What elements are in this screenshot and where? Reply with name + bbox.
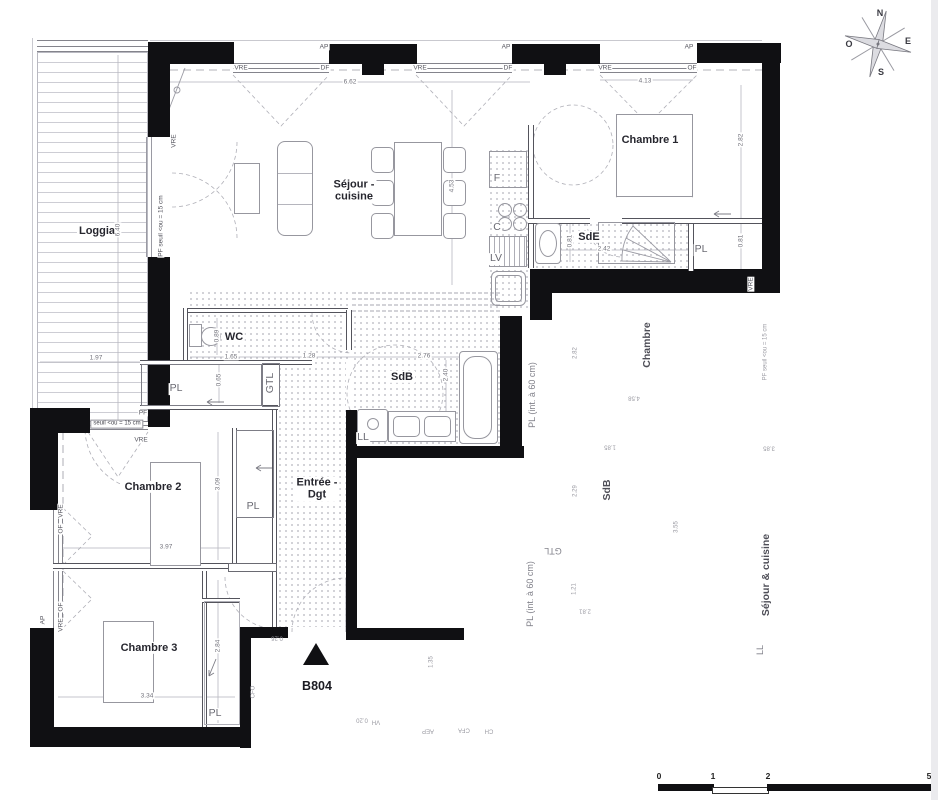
- dimension-label: 3.34: [140, 692, 155, 699]
- partition-wall: [528, 125, 534, 268]
- wall-segment: [530, 290, 552, 320]
- neighbor-label: LL: [755, 645, 765, 655]
- dimension-label: 0.81: [737, 234, 744, 249]
- threshold-tag: PF seuil <ou = 15 cm: [157, 194, 164, 257]
- dimension-label: 2.84: [214, 639, 221, 654]
- compass-letter-o: O: [845, 39, 852, 49]
- scale-bar-segment: [767, 784, 932, 791]
- kitchen-sink: [491, 271, 526, 306]
- utility-tag: CFO: [251, 686, 258, 699]
- wall-segment: [329, 44, 417, 64]
- vanity-double-basin: [388, 411, 456, 442]
- dimension-label: 1.97: [89, 354, 104, 361]
- neighbor-dimension: 0.20: [356, 716, 368, 723]
- opening-tag: VRE: [57, 503, 64, 518]
- sde-washbasin: [535, 223, 561, 264]
- unit-number: B804: [302, 679, 332, 693]
- shower-tray: [598, 222, 675, 264]
- wall-segment: [362, 64, 384, 75]
- dimension-label: 2.42: [597, 245, 612, 252]
- washer-label: LL: [356, 432, 370, 444]
- neighbor-label: GTL: [544, 546, 562, 556]
- room-label-sdb: SdB: [389, 371, 415, 383]
- closet-label: PL: [208, 708, 223, 720]
- scale-tick-label: 2: [766, 772, 771, 782]
- neighbor-dimension: 1.35: [429, 656, 436, 668]
- opening-tag: OF: [57, 523, 64, 534]
- dishwasher-label: LV: [489, 253, 503, 265]
- hob-burner: [513, 203, 527, 217]
- dining-chair: [371, 147, 394, 173]
- fridge-label: F: [493, 173, 501, 185]
- partition-wall: [346, 310, 352, 350]
- bed-chambre-2: [150, 462, 201, 566]
- scale-bar-segment: [712, 787, 769, 794]
- utility-tag: CFA: [458, 726, 470, 733]
- utility-tag: CH: [485, 727, 494, 734]
- partition-wall: [183, 308, 188, 365]
- neighbor-label: PL (int. à 60 cm): [525, 561, 535, 627]
- opening-tag: VRE: [233, 64, 248, 71]
- wall-segment: [544, 64, 566, 75]
- room-label-chambre-2: Chambre 2: [123, 481, 184, 493]
- neighbor-dimension: 1.85: [604, 443, 616, 450]
- neighbor-dimension: 3.85: [763, 444, 775, 451]
- utility-tag: VH: [372, 718, 380, 725]
- compass-letter-e: E: [905, 36, 911, 46]
- room-label-sde: SdE: [576, 231, 601, 243]
- neighbor-dimension: 3.55: [674, 521, 681, 533]
- neighbor-room-label: SdB: [602, 480, 614, 501]
- room-label-entree-dgt: Entrée - Dgt: [295, 477, 340, 502]
- sliding-door-leaf: [228, 563, 277, 572]
- compass-letter-s: S: [878, 67, 884, 77]
- cooktop-label: C: [492, 222, 502, 234]
- dining-chair: [443, 213, 466, 239]
- neighbor-dimension: 2.81: [579, 607, 591, 614]
- neighbor-dimension: 1.21: [572, 583, 579, 595]
- partition-wall: [53, 563, 231, 569]
- dimension-label: 1.65: [224, 353, 239, 360]
- room-label-wc: WC: [223, 331, 245, 343]
- opening-tag: AP: [501, 43, 512, 50]
- dimension-label: 0.89: [213, 329, 220, 344]
- opening-tag: VRE: [170, 133, 177, 148]
- bed-chambre-3: [103, 621, 154, 703]
- french-door-frame: [146, 137, 152, 257]
- threshold-tag: seuil <ou = 15 cm: [90, 420, 143, 429]
- entrance-triangle: [303, 643, 329, 665]
- dimension-label: 4.13: [638, 77, 653, 84]
- opening-tag: PF: [138, 409, 148, 416]
- wall-segment: [148, 42, 170, 137]
- dimension-label: 3.97: [159, 543, 174, 550]
- dimension-label: 3.09: [214, 477, 221, 492]
- wall-segment: [762, 43, 780, 293]
- room-label-sejour-cuisine: Séjour - cuisine: [332, 179, 377, 204]
- wall-segment: [512, 44, 600, 64]
- neighbor-dimension: 4.58: [628, 394, 640, 401]
- wall-segment: [30, 628, 54, 747]
- utility-tag: AEP: [422, 727, 434, 734]
- room-label-loggia: Loggia: [77, 225, 117, 237]
- neighbor-label: PF seuil <ou = 15 cm: [763, 324, 770, 381]
- room-label-chambre-1: Chambre 1: [620, 134, 681, 146]
- opening-tag: AP: [684, 43, 695, 50]
- opening-tag: VRE: [57, 617, 64, 632]
- opening-tag: VRE: [747, 276, 754, 291]
- sofa: [277, 141, 313, 236]
- hob-burner: [513, 217, 527, 231]
- dimension-label: 6.62: [343, 78, 358, 85]
- wall-segment: [500, 316, 522, 458]
- closet-label: PL: [694, 244, 709, 256]
- wall-segment: [346, 628, 464, 640]
- opening-tag: OF: [57, 601, 64, 612]
- dimension-label: 2.40: [442, 368, 449, 383]
- opening-tag: DF: [320, 64, 331, 71]
- gtl-label: GTL: [265, 372, 277, 394]
- dimension-label: 2.82: [737, 133, 744, 148]
- floor-plan-canvas: LoggiaSéjour - cuisineChambre 1SdEWCSdBE…: [0, 0, 938, 800]
- side-table: [234, 163, 260, 214]
- closet-label: PL: [246, 501, 261, 513]
- dimension-label: 2.76: [417, 352, 432, 359]
- bathtub: [459, 351, 498, 444]
- closet-box-wc: [141, 364, 262, 406]
- dimension-label: 6.40: [114, 223, 121, 238]
- dimension-label: 0.81: [566, 234, 573, 249]
- partition-wall: [188, 308, 348, 313]
- neighbor-dimension: 2.29: [573, 485, 580, 497]
- opening-tag: DF: [503, 64, 514, 71]
- wall-segment: [30, 408, 90, 433]
- scale-bar-segment: [658, 784, 714, 791]
- scale-tick-label: 1: [711, 772, 716, 782]
- opening-tag: VRE: [597, 64, 612, 71]
- closet-label: PL: [169, 383, 184, 395]
- opening-tag: VRE: [412, 64, 427, 71]
- dimension-label: 4.53: [448, 179, 455, 194]
- dining-chair: [443, 147, 466, 173]
- wall-segment: [357, 446, 524, 458]
- hob-burner: [498, 203, 512, 217]
- dimension-label: 0.65: [215, 373, 222, 388]
- viewport-edge: [931, 0, 938, 800]
- dining-table: [394, 142, 442, 236]
- bed-chambre-1: [616, 114, 693, 197]
- opening-tag: OF: [686, 64, 697, 71]
- opening-tag: VRE: [133, 436, 148, 443]
- dimension-label: 1.28: [302, 352, 317, 359]
- neighbor-room-label: Séjour & cuisine: [761, 534, 773, 616]
- window-band: [600, 63, 697, 73]
- neighbor-dimension: 2.82: [573, 347, 580, 359]
- window-band: [416, 63, 512, 73]
- wall-segment: [36, 727, 251, 747]
- opening-tag: AP: [319, 43, 330, 50]
- neighbor-room-label: Chambre: [642, 322, 654, 368]
- opening-tag: AP: [39, 615, 46, 626]
- scale-tick-label: 0: [657, 772, 662, 782]
- wall-segment: [530, 269, 780, 293]
- compass-letter-n: N: [877, 8, 884, 18]
- neighbor-dimension: 0.26: [271, 634, 283, 641]
- neighbor-label: PL (int. à 60 cm): [527, 362, 537, 428]
- wall-segment: [346, 410, 357, 640]
- dining-chair: [371, 213, 394, 239]
- room-label-chambre-3: Chambre 3: [119, 642, 180, 654]
